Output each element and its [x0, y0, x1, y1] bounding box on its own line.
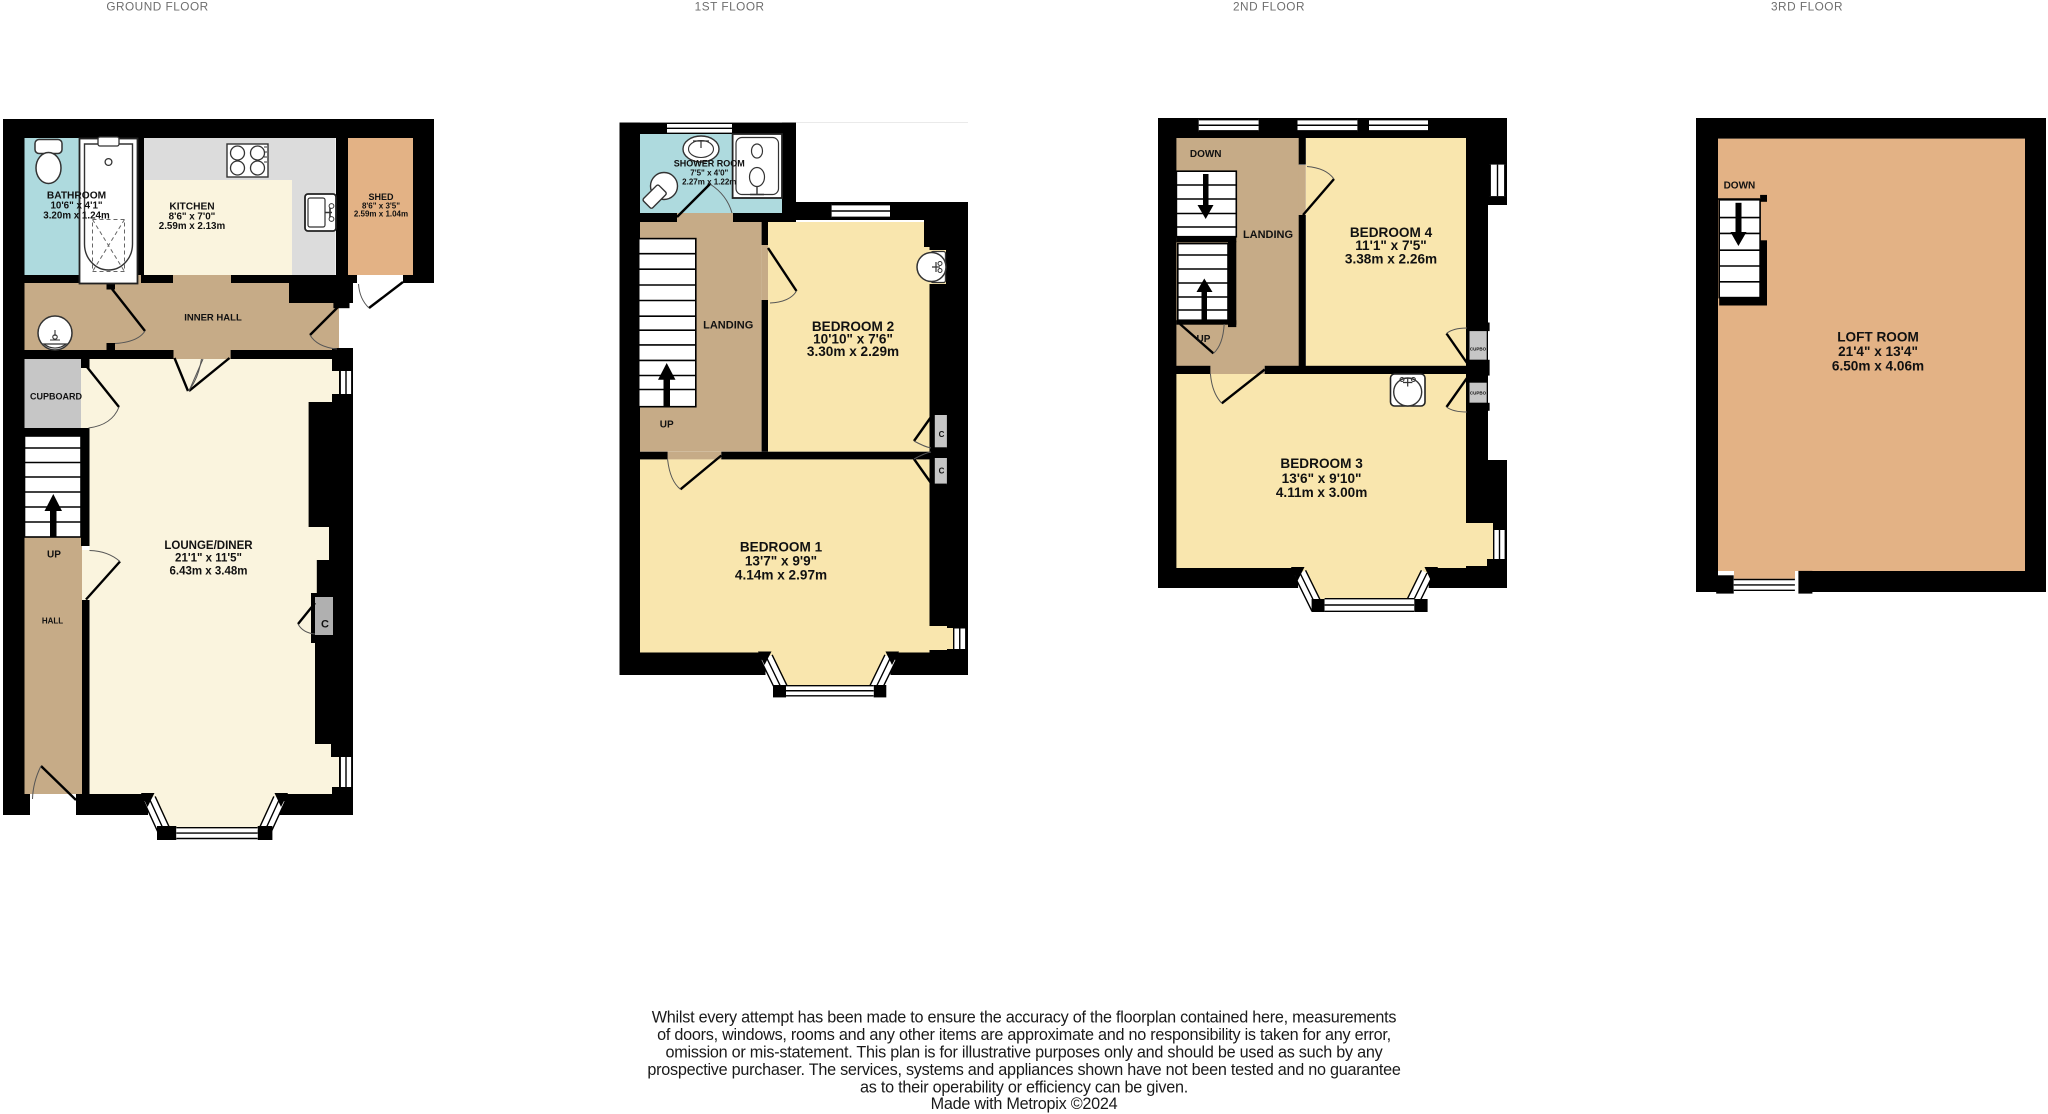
svg-text:CUPBOARD: CUPBOARD	[30, 392, 83, 402]
svg-text:2ND FLOOR: 2ND FLOOR	[1233, 0, 1305, 14]
svg-text:4.14m x 2.97m: 4.14m x 2.97m	[735, 568, 827, 583]
svg-text:6.43m x 3.48m: 6.43m x 3.48m	[169, 566, 247, 578]
svg-text:CUPBO: CUPBO	[1470, 391, 1487, 396]
svg-text:GROUND FLOOR: GROUND FLOOR	[106, 0, 208, 14]
svg-text:6.50m x 4.06m: 6.50m x 4.06m	[1832, 359, 1924, 374]
svg-text:DOWN: DOWN	[1190, 149, 1222, 160]
svg-text:13'6" x 9'10": 13'6" x 9'10"	[1282, 471, 1362, 486]
svg-text:CUPBO: CUPBO	[1470, 347, 1487, 352]
svg-text:LANDING: LANDING	[703, 320, 753, 332]
svg-text:4.11m x 3.00m: 4.11m x 3.00m	[1276, 485, 1367, 500]
svg-text:C: C	[939, 467, 945, 476]
svg-text:3RD FLOOR: 3RD FLOOR	[1771, 0, 1843, 14]
svg-text:2.27m x 1.22m: 2.27m x 1.22m	[682, 178, 736, 187]
svg-text:3.38m x 2.26m: 3.38m x 2.26m	[1345, 252, 1437, 267]
svg-text:LOUNGE/DINER: LOUNGE/DINER	[164, 540, 253, 552]
svg-text:DOWN: DOWN	[1724, 180, 1756, 191]
svg-text:UP: UP	[47, 550, 61, 561]
svg-text:21'1" x 11'5": 21'1" x 11'5"	[175, 553, 242, 565]
svg-text:C: C	[321, 619, 329, 631]
svg-text:omission or mis-statement. Thi: omission or mis-statement. This plan is …	[666, 1044, 1384, 1062]
svg-text:UP: UP	[1197, 334, 1211, 345]
svg-text:3.30m x 2.29m: 3.30m x 2.29m	[807, 344, 899, 359]
svg-text:prospective purchaser. The ser: prospective purchaser. The services, sys…	[647, 1061, 1400, 1079]
svg-text:UP: UP	[660, 420, 674, 431]
svg-text:7'5" x 4'0": 7'5" x 4'0"	[690, 169, 728, 178]
svg-text:HALL: HALL	[42, 617, 63, 626]
svg-text:3.20m x 1.24m: 3.20m x 1.24m	[43, 211, 110, 222]
svg-text:C: C	[939, 430, 945, 439]
svg-text:21'4" x 13'4": 21'4" x 13'4"	[1838, 344, 1918, 359]
svg-text:Made with Metropix ©2024: Made with Metropix ©2024	[931, 1095, 1118, 1113]
svg-text:of doors, windows, rooms and a: of doors, windows, rooms and any other i…	[657, 1026, 1391, 1044]
svg-text:SHED: SHED	[368, 192, 394, 202]
svg-text:2.59m x 2.13m: 2.59m x 2.13m	[159, 221, 226, 232]
svg-text:BEDROOM 1: BEDROOM 1	[740, 540, 823, 555]
svg-text:SHOWER ROOM: SHOWER ROOM	[674, 159, 745, 169]
svg-text:2.59m x 1.04m: 2.59m x 1.04m	[354, 210, 408, 219]
svg-text:as to their operability or eff: as to their operability or efficiency ca…	[860, 1079, 1188, 1097]
svg-text:LANDING: LANDING	[1243, 229, 1293, 241]
svg-text:13'7" x 9'9": 13'7" x 9'9"	[745, 554, 817, 569]
svg-text:LOFT ROOM: LOFT ROOM	[1837, 330, 1919, 345]
svg-text:1ST FLOOR: 1ST FLOOR	[695, 0, 765, 14]
svg-text:INNER HALL: INNER HALL	[184, 313, 242, 324]
svg-text:Whilst every attempt has been: Whilst every attempt has been made to en…	[652, 1009, 1397, 1027]
svg-text:BEDROOM 3: BEDROOM 3	[1280, 456, 1363, 471]
